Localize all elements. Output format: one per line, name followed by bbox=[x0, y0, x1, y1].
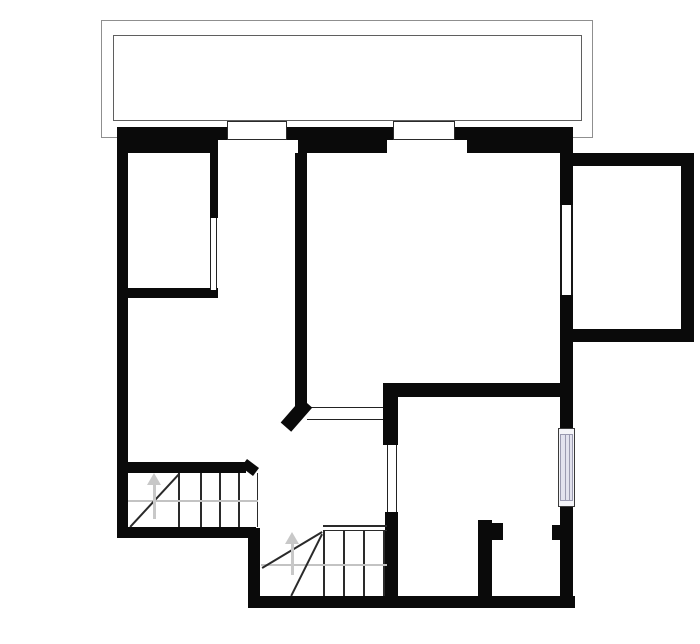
right-window-lower-mullion-2 bbox=[569, 434, 570, 501]
wall-exterior-right-middle bbox=[560, 295, 573, 428]
stair1-up-arrow-stem bbox=[153, 484, 156, 519]
wall-small-room-left bbox=[478, 520, 492, 608]
wall-central-vertical bbox=[295, 152, 307, 408]
floor-plan bbox=[0, 0, 700, 644]
wall-exterior-right-lower bbox=[560, 507, 573, 608]
wall-hall-door-jamb-upper bbox=[383, 383, 398, 445]
wall-room1-side bbox=[210, 152, 218, 218]
wall-stair1-top bbox=[128, 462, 246, 473]
wall-middle-horizontal bbox=[383, 383, 573, 397]
wall-exterior-bottom bbox=[248, 596, 575, 608]
wall-exterior-left bbox=[117, 128, 128, 538]
top-window-2 bbox=[393, 121, 455, 140]
wall-small-room-notch-left bbox=[492, 523, 503, 540]
stair2-landing-line-2 bbox=[323, 530, 387, 532]
wall-annex-right bbox=[681, 153, 694, 342]
stair1-walkline bbox=[128, 500, 258, 502]
right-window-lower-mullion-1 bbox=[565, 434, 566, 501]
stair2-up-arrow-stem bbox=[291, 543, 294, 575]
room1-door-opening bbox=[210, 218, 217, 290]
wall-annex-top bbox=[573, 153, 694, 166]
wall-small-room-notch-right bbox=[552, 525, 560, 540]
hall-door-opening bbox=[387, 445, 397, 512]
wall-room1-bottom bbox=[117, 288, 218, 298]
wall-stair1-bottom bbox=[117, 527, 256, 538]
top-window-1 bbox=[227, 121, 287, 140]
wall-exterior-top bbox=[117, 127, 573, 153]
passage-threshold bbox=[307, 407, 383, 420]
right-window-upper bbox=[560, 205, 573, 295]
window2-inner-reveal bbox=[387, 140, 467, 153]
wall-step-down bbox=[248, 528, 260, 608]
stair2-walkline bbox=[261, 564, 387, 566]
stair2-landing-line-1 bbox=[323, 525, 387, 527]
right-window-lower-glass bbox=[560, 434, 573, 501]
balcony-inner-rail bbox=[113, 35, 582, 121]
wall-annex-bottom bbox=[573, 329, 694, 342]
window1-inner-reveal bbox=[218, 140, 298, 153]
wall-exterior-right-upper bbox=[560, 140, 573, 205]
